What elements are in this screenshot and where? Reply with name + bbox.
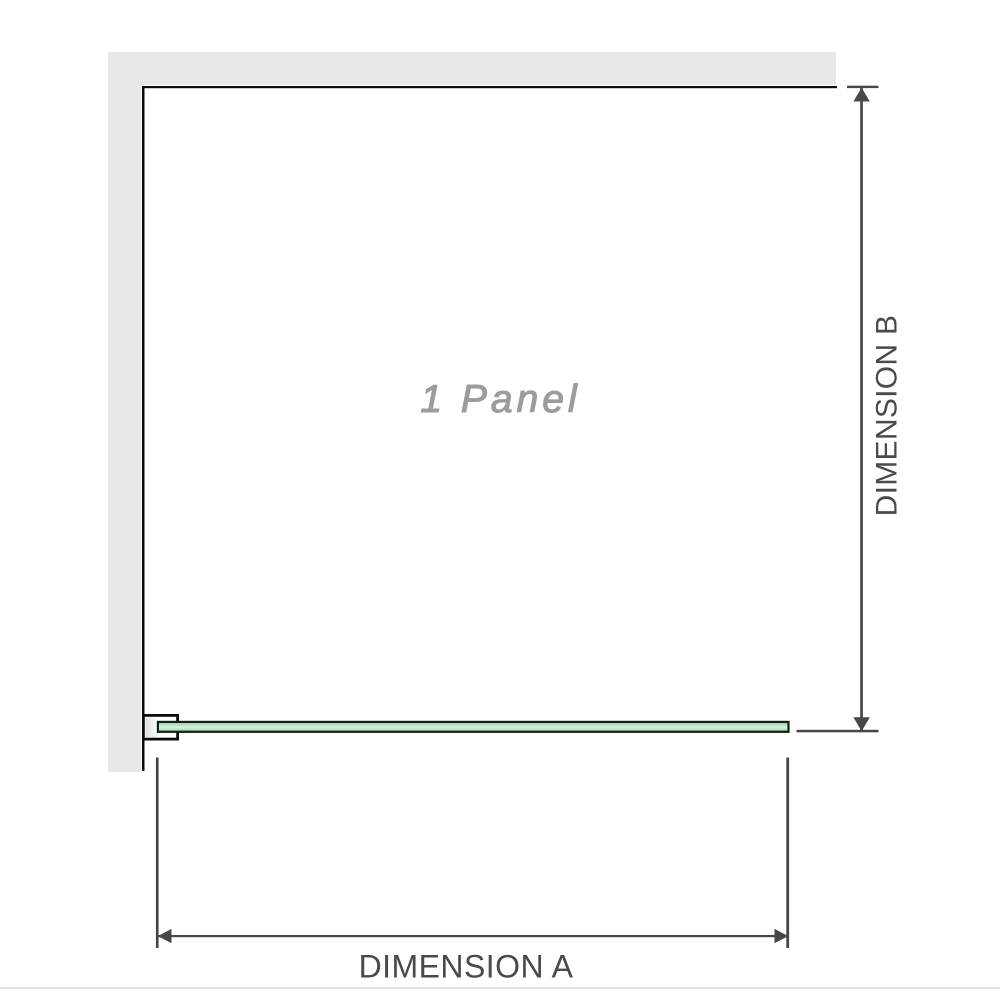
svg-text:DIMENSION B: DIMENSION B [871, 315, 904, 517]
svg-text:1 Panel: 1 Panel [420, 378, 580, 421]
svg-text:DIMENSION A: DIMENSION A [359, 949, 574, 985]
